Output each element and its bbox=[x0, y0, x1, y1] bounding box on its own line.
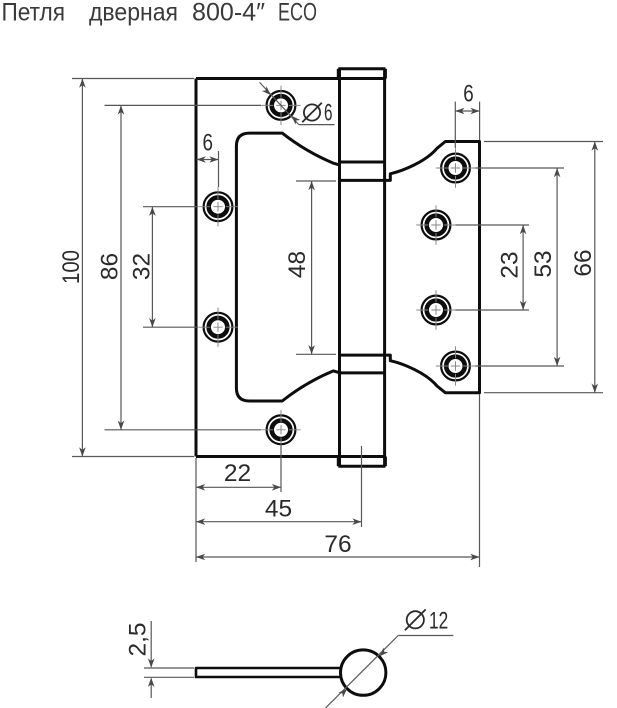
svg-text:48: 48 bbox=[284, 251, 311, 278]
svg-text:6: 6 bbox=[203, 129, 214, 156]
svg-text:12: 12 bbox=[429, 607, 448, 634]
svg-text:86: 86 bbox=[97, 253, 124, 280]
svg-text:66: 66 bbox=[570, 249, 597, 276]
svg-text:100: 100 bbox=[58, 250, 85, 284]
svg-text:6: 6 bbox=[463, 81, 474, 108]
svg-text:76: 76 bbox=[324, 531, 351, 558]
svg-text:32: 32 bbox=[129, 253, 156, 280]
svg-text:53: 53 bbox=[530, 250, 557, 277]
svg-text:2,5: 2,5 bbox=[125, 622, 152, 656]
svg-text:22: 22 bbox=[224, 460, 251, 487]
svg-text:дверная: дверная bbox=[89, 0, 178, 27]
svg-text:ECO: ECO bbox=[278, 0, 317, 27]
svg-text:23: 23 bbox=[497, 251, 524, 278]
svg-text:6: 6 bbox=[324, 99, 333, 126]
svg-text:Петля: Петля bbox=[2, 0, 66, 27]
svg-text:45: 45 bbox=[265, 496, 292, 523]
svg-text:800-4″: 800-4″ bbox=[192, 0, 265, 27]
